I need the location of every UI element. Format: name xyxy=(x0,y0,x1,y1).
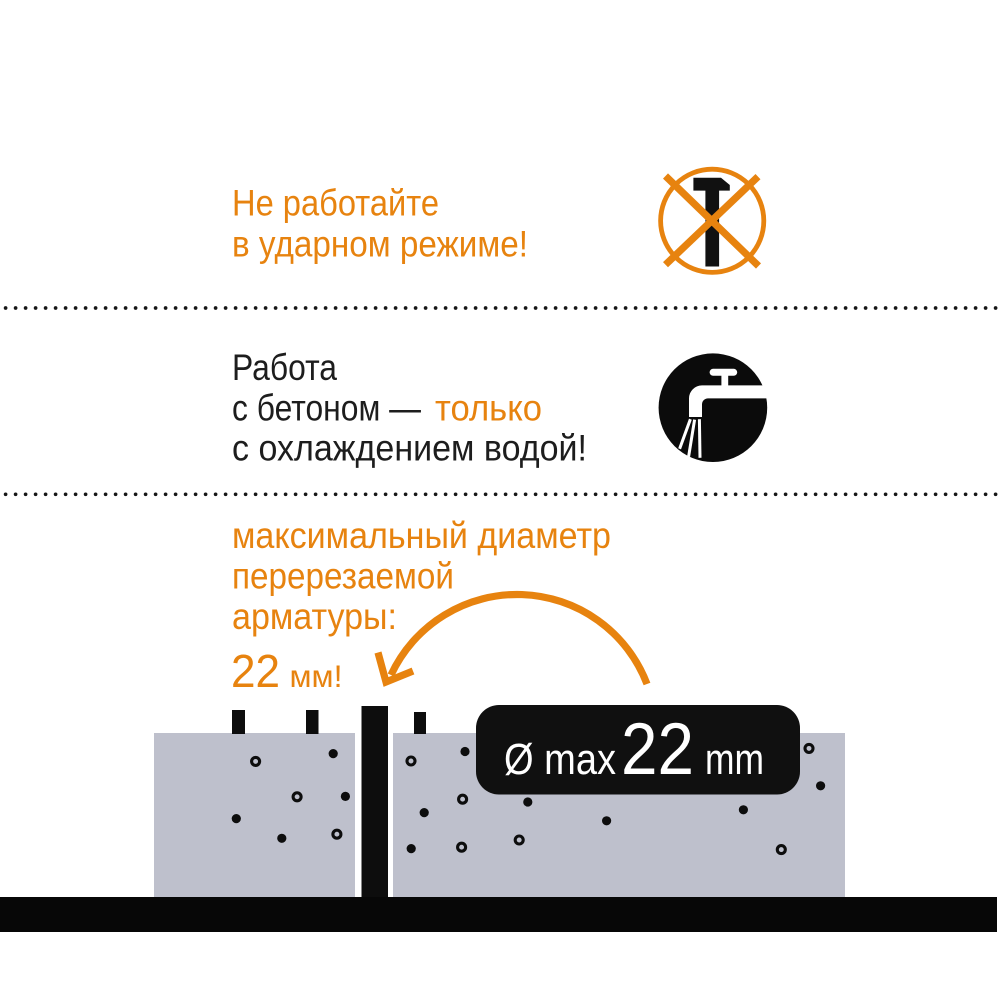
svg-text:только: только xyxy=(435,388,542,429)
svg-text:мм!: мм! xyxy=(290,658,343,694)
svg-text:Ø max: Ø max xyxy=(504,735,616,784)
svg-text:в ударном режиме!: в ударном режиме! xyxy=(232,224,528,265)
svg-text:mm: mm xyxy=(705,735,764,784)
svg-text:Не работайте: Не работайте xyxy=(232,183,439,224)
svg-text:22: 22 xyxy=(231,645,280,697)
svg-text:перерезаемой: перерезаемой xyxy=(232,556,454,597)
svg-text:22: 22 xyxy=(621,709,694,790)
svg-text:с бетоном —: с бетоном — xyxy=(232,388,421,429)
svg-text:с охлаждением водой!: с охлаждением водой! xyxy=(232,428,587,469)
svg-text:арматуры:: арматуры: xyxy=(232,596,397,637)
svg-text:Работа: Работа xyxy=(232,347,337,388)
svg-text:максимальный диаметр: максимальный диаметр xyxy=(232,515,611,556)
